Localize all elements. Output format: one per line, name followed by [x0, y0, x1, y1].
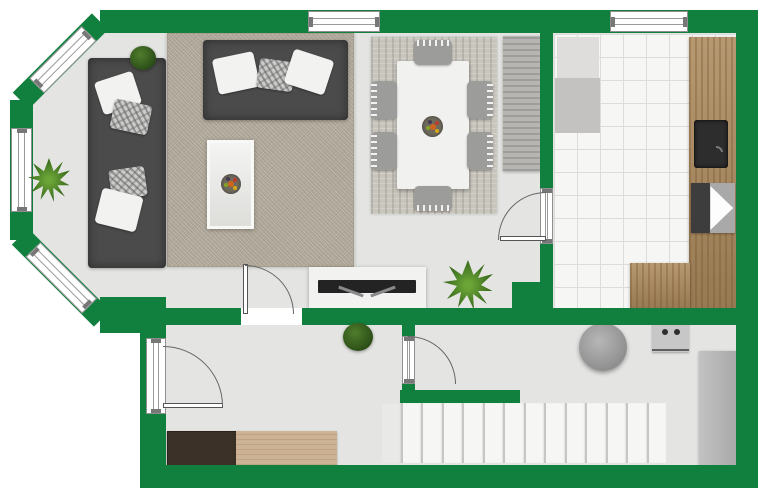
- fruit-bowl-dining-table: [422, 116, 443, 137]
- stair-tread: [382, 403, 401, 463]
- wall-hall-divider-stub-lower: [402, 384, 415, 392]
- stair-tread: [628, 403, 647, 463]
- wall-kitchen-pillar: [512, 282, 553, 309]
- washing-machine: [652, 322, 689, 352]
- stair-tread: [444, 403, 463, 463]
- dining-chair-north: [414, 40, 452, 65]
- stair-tread: [485, 403, 504, 463]
- fruit-bowl-coffee-table: [221, 174, 241, 194]
- wall-bottom: [140, 465, 758, 488]
- stair-tread: [608, 403, 627, 463]
- kitchen-appliance: [555, 78, 600, 133]
- hall-cabinet: [699, 351, 736, 465]
- staircase: [382, 403, 667, 463]
- entry-bench: [167, 431, 238, 467]
- dining-chair-east-1: [467, 81, 493, 119]
- wall-kitchen-west: [540, 28, 553, 310]
- kitchen-counter-return: [630, 263, 690, 308]
- wall-stairs: [400, 390, 520, 403]
- window-bay-left: [11, 128, 32, 212]
- kitchen-sink: [694, 120, 728, 168]
- dining-chair-west-1: [371, 81, 397, 119]
- wall-bay-base: [100, 297, 166, 333]
- window-top-kitchen: [610, 11, 688, 32]
- stair-tread: [649, 403, 668, 463]
- dining-sideboard: [503, 36, 541, 171]
- pouf: [579, 323, 627, 371]
- dining-chair-south: [414, 186, 452, 211]
- stair-tread: [567, 403, 586, 463]
- stair-tread: [464, 403, 483, 463]
- stair-tread: [546, 403, 565, 463]
- window-top-living: [308, 11, 380, 32]
- fridge: [557, 37, 599, 78]
- stair-tread: [587, 403, 606, 463]
- stair-tread: [403, 403, 422, 463]
- stair-tread: [423, 403, 442, 463]
- wall-hall-divider-stub-upper: [402, 325, 415, 336]
- dining-chair-east-2: [467, 132, 493, 170]
- wall-right: [736, 10, 758, 488]
- kitchen-counter: [689, 37, 738, 308]
- potted-plant-living-top: [130, 46, 156, 70]
- potted-plant-hallway: [343, 323, 373, 351]
- dining-chair-west-2: [371, 132, 397, 170]
- floor-plan-canvas: [0, 0, 763, 500]
- tv: [318, 280, 416, 293]
- oven: [691, 183, 735, 233]
- entry-sideboard: [236, 431, 337, 465]
- stair-tread: [505, 403, 524, 463]
- stair-tread: [526, 403, 545, 463]
